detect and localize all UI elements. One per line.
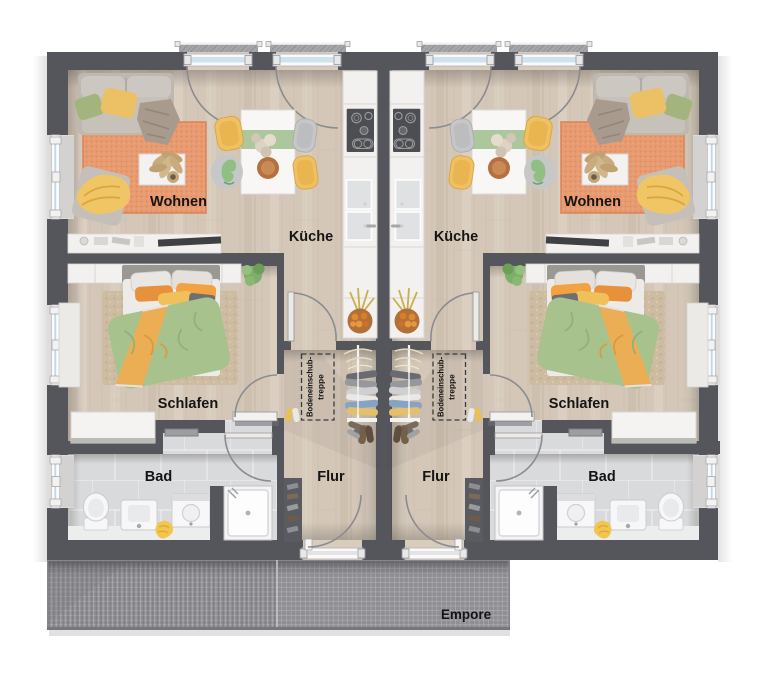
svg-text:Bodeneinschub-: Bodeneinschub- bbox=[305, 357, 315, 417]
svg-text:treppe: treppe bbox=[447, 374, 457, 400]
svg-text:Schlafen: Schlafen bbox=[549, 396, 609, 412]
svg-text:Bad: Bad bbox=[145, 469, 172, 485]
svg-text:Flur: Flur bbox=[317, 469, 345, 485]
svg-text:Wohnen: Wohnen bbox=[150, 194, 207, 210]
svg-text:Flur: Flur bbox=[422, 469, 450, 485]
svg-text:Bad: Bad bbox=[588, 469, 615, 485]
svg-text:Küche: Küche bbox=[434, 229, 478, 245]
svg-text:treppe: treppe bbox=[316, 374, 326, 400]
svg-text:Schlafen: Schlafen bbox=[158, 396, 218, 412]
svg-text:Bodeneinschub-: Bodeneinschub- bbox=[436, 357, 446, 417]
svg-text:Küche: Küche bbox=[289, 229, 333, 245]
svg-text:Empore: Empore bbox=[441, 607, 492, 622]
svg-text:Wohnen: Wohnen bbox=[564, 194, 621, 210]
